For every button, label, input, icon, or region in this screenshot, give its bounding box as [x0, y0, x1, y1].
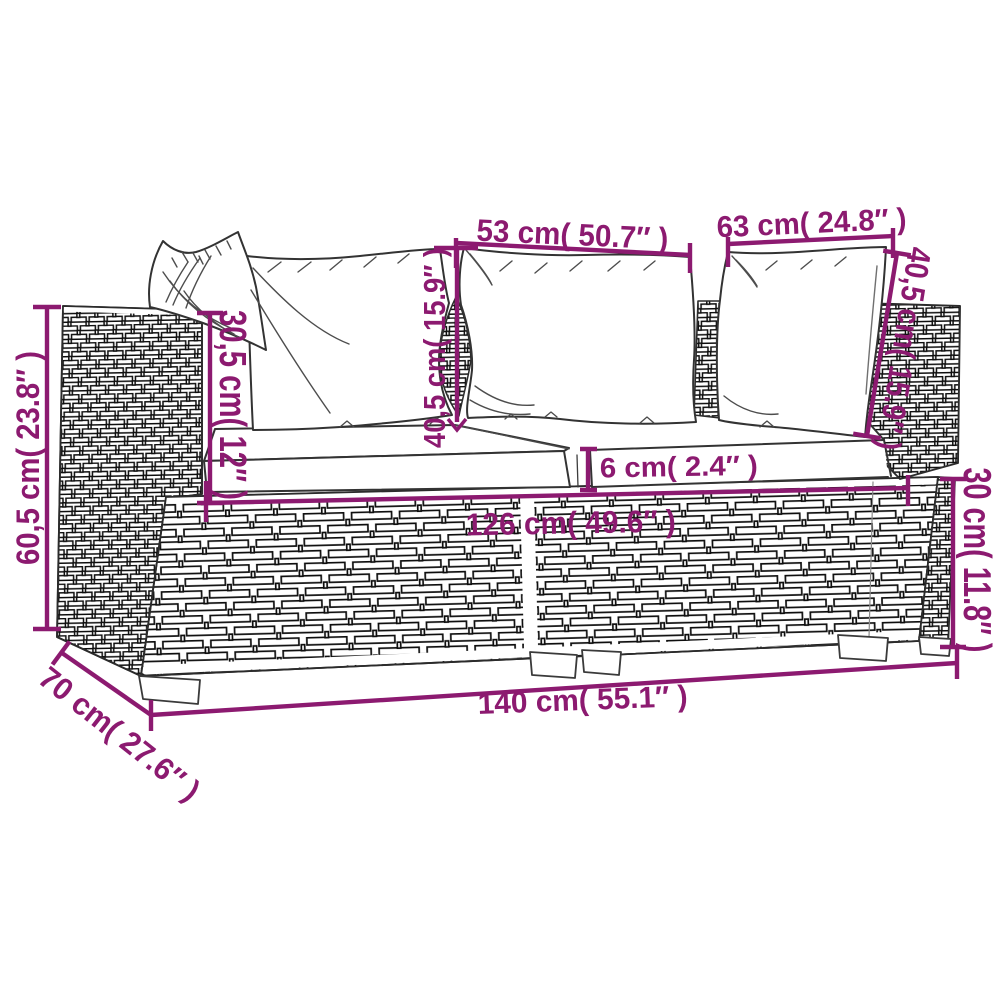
- svg-text:6 cm( 2.4″ ): 6 cm( 2.4″ ): [600, 450, 759, 484]
- svg-text:60,5 cm( 23.8″ ): 60,5 cm( 23.8″ ): [10, 351, 46, 565]
- svg-text:126 cm( 49.6″ ): 126 cm( 49.6″ ): [466, 503, 677, 543]
- svg-text:40,5 cm( 15.9″ ): 40,5 cm( 15.9″ ): [417, 248, 452, 448]
- svg-text:30 cm( 11.8″ ): 30 cm( 11.8″ ): [955, 468, 998, 653]
- svg-text:30,5 cm( 12″ ): 30,5 cm( 12″ ): [211, 310, 253, 500]
